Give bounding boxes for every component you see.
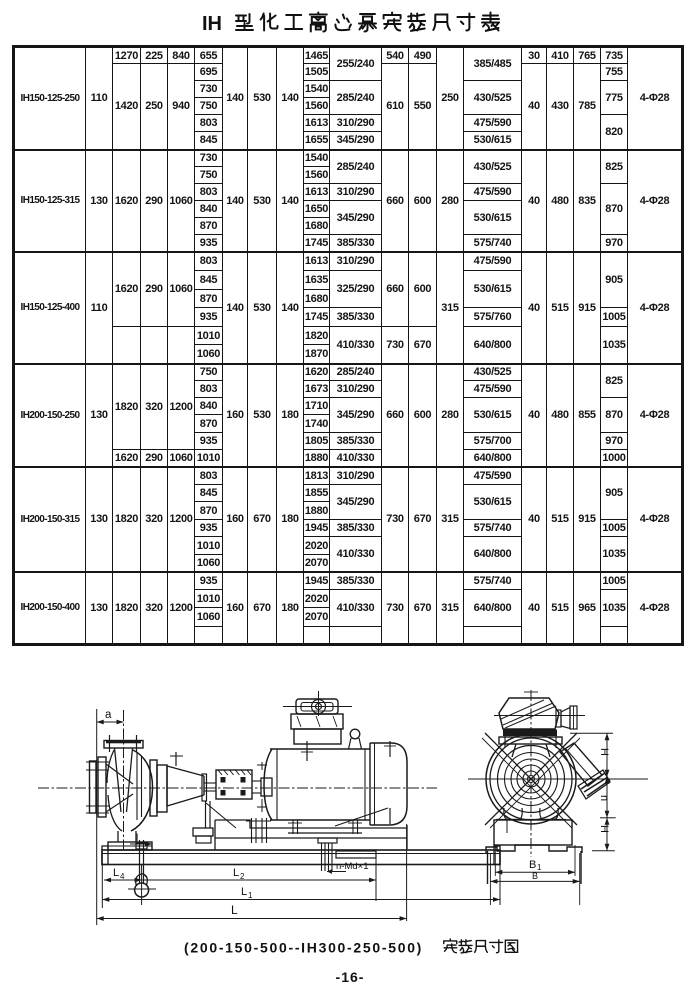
svg-text:H: H: [598, 825, 610, 833]
svg-text:(200-150-500--IH300-250-500): (200-150-500--IH300-250-500): [184, 940, 423, 956]
svg-text:1: 1: [248, 891, 253, 900]
svg-text:l: l: [136, 833, 138, 844]
svg-text:B: B: [529, 859, 536, 871]
svg-text:B: B: [532, 871, 538, 881]
svg-text:a: a: [105, 709, 112, 721]
svg-text:n-Md×1: n-Md×1: [336, 861, 368, 872]
svg-text:H: H: [598, 748, 610, 756]
svg-text:4: 4: [120, 872, 125, 881]
svg-text:2: 2: [240, 872, 245, 881]
svg-text:L: L: [231, 903, 238, 917]
svg-text:IH: IH: [202, 13, 222, 35]
svg-text:L: L: [113, 867, 119, 879]
svg-text:L: L: [241, 886, 247, 898]
svg-text:n: n: [598, 795, 610, 801]
svg-text:L: L: [233, 867, 239, 879]
